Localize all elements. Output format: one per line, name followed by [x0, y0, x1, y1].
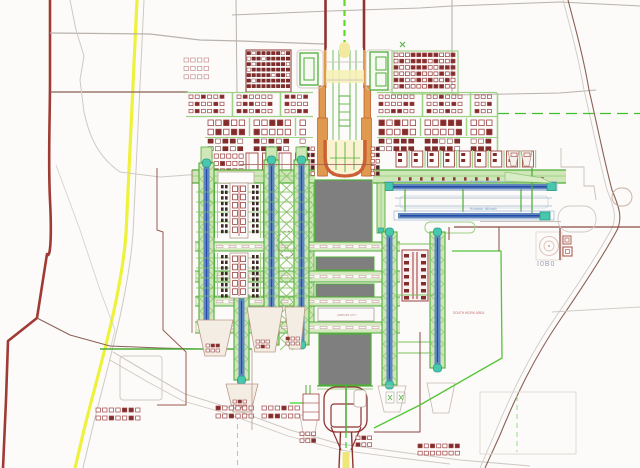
svg-text:SOUTH WORK AREA: SOUTH WORK AREA [453, 311, 485, 315]
svg-text:AIRPORT CITY: AIRPORT CITY [337, 313, 357, 317]
svg-text:RUNWAY 3800x60: RUNWAY 3800x60 [470, 207, 497, 211]
svg-text:I0B0: I0B0 [537, 261, 555, 268]
svg-text:RUNWAY 3800x60: RUNWAY 3800x60 [470, 180, 497, 184]
